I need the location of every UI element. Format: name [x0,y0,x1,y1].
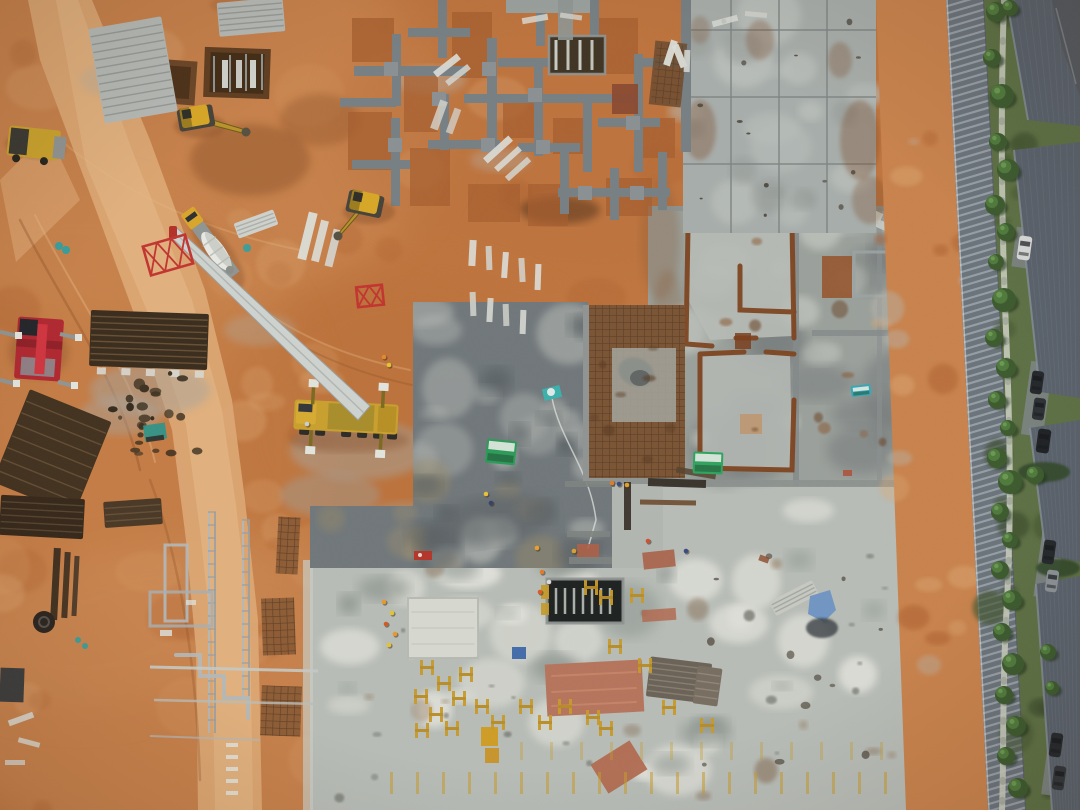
construction-site-scene [0,0,1080,810]
aerial-construction-site-photo [0,0,1080,810]
vignette-overlay [0,0,1080,810]
